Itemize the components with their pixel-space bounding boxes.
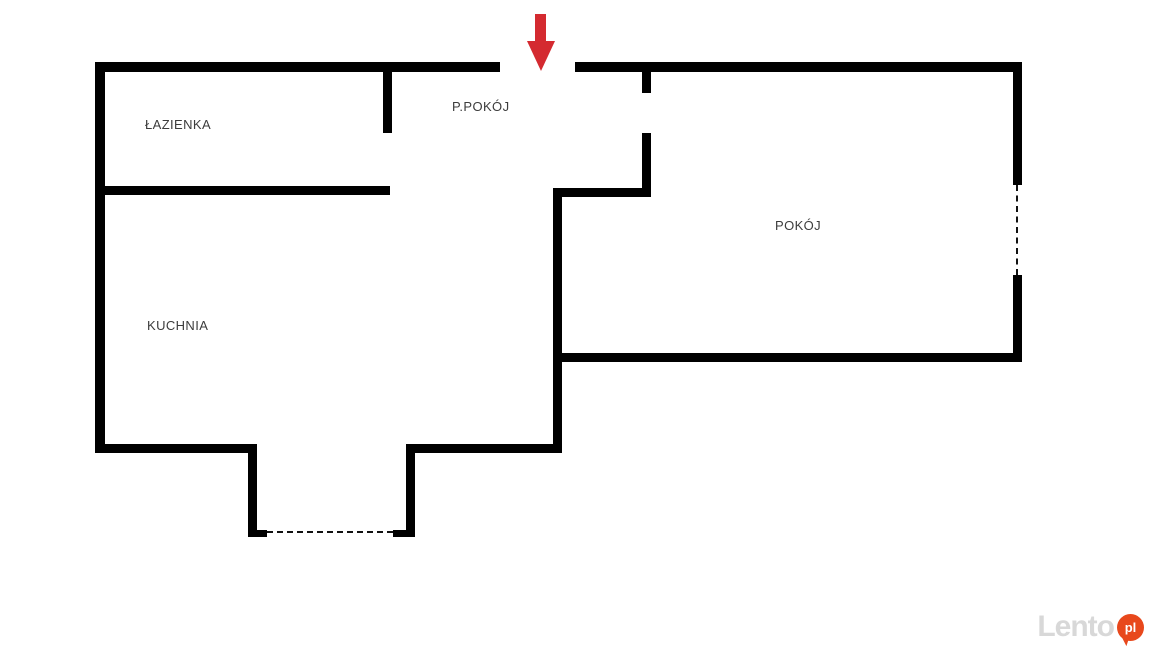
wall-bottom-right-section [406, 444, 562, 453]
wall-right-exterior-lower [1013, 275, 1022, 362]
wall-left-exterior [95, 62, 105, 453]
wall-notch-right-vertical [406, 444, 415, 537]
wall-notch-bottom-stub-left [248, 530, 267, 537]
entrance-arrow-head [527, 41, 555, 71]
room-label-ppokoj: P.POKÓJ [452, 99, 509, 114]
wall-top-left-section [95, 62, 500, 72]
wall-hall-right-vertical [553, 188, 562, 453]
wall-notch-left-vertical [248, 444, 257, 537]
lento-logo: Lento pl [1037, 612, 1144, 642]
floorplan-canvas: ŁAZIENKA P.POKÓJ KUCHNIA POKÓJ Lento pl [0, 0, 1152, 648]
wall-pokoj-left-upper-stub [642, 62, 651, 93]
lento-bubble-tail-icon [1118, 634, 1129, 645]
room-label-lazienka: ŁAZIENKA [145, 117, 211, 132]
wall-bathroom-bottom [95, 186, 390, 195]
wall-bottom-left-section [95, 444, 257, 453]
lento-pl-bubble: pl [1117, 614, 1144, 641]
window-dashed-line [1016, 185, 1018, 275]
room-label-pokoj: POKÓJ [775, 218, 821, 233]
lento-pl-text: pl [1125, 620, 1137, 635]
wall-jog-horizontal [553, 188, 650, 197]
entrance-arrow-shaft [535, 14, 546, 42]
wall-bathroom-divider [383, 62, 392, 133]
room-label-kuchnia: KUCHNIA [147, 318, 208, 333]
balcony-door-dashed-line [267, 531, 393, 533]
wall-pokoj-bottom [553, 353, 1022, 362]
lento-wordmark: Lento [1037, 612, 1114, 642]
wall-right-exterior-upper [1013, 62, 1022, 185]
